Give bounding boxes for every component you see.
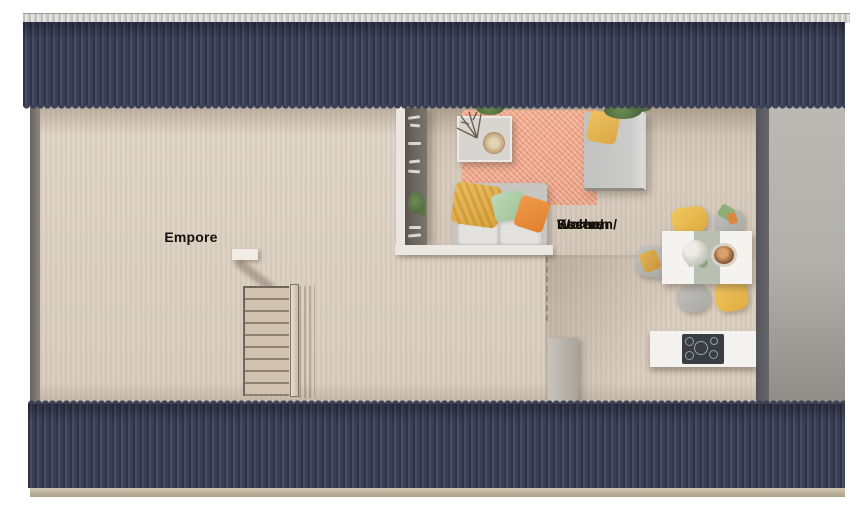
burner-icon bbox=[685, 351, 694, 360]
partition-wall bbox=[396, 105, 405, 246]
book-icon bbox=[408, 115, 420, 120]
left-gable-wall bbox=[30, 105, 40, 404]
book-icon bbox=[408, 170, 420, 174]
staircase bbox=[243, 286, 289, 396]
burner-icon bbox=[710, 337, 718, 345]
book-icon bbox=[409, 226, 421, 229]
dining-table bbox=[662, 231, 752, 284]
book-icon bbox=[410, 124, 420, 128]
burner-icon bbox=[685, 337, 694, 346]
burner-icon bbox=[694, 341, 708, 355]
stair-wall-stub bbox=[232, 249, 258, 260]
right-interior-wall bbox=[756, 105, 769, 404]
kitchen-island bbox=[650, 331, 757, 367]
stair-railing-shadow bbox=[299, 286, 315, 398]
stair-railing bbox=[290, 284, 299, 397]
bookshelf bbox=[405, 108, 427, 245]
daybed bbox=[584, 112, 646, 191]
room-label-empore: Empore bbox=[141, 230, 241, 246]
attic-floor-plan: Empore Wohnen/ Essen/ Kochen bbox=[0, 0, 866, 517]
sofa bbox=[454, 183, 547, 246]
burner-icon bbox=[709, 350, 718, 359]
book-icon bbox=[408, 142, 421, 145]
roof-slope-top bbox=[23, 22, 845, 105]
flower-bouquet-icon bbox=[682, 240, 708, 266]
book-icon bbox=[408, 233, 421, 237]
dining-chair bbox=[677, 283, 710, 312]
roof-slope-bottom bbox=[28, 404, 845, 488]
coffee-table bbox=[457, 116, 512, 162]
gallery-knee-wall bbox=[395, 245, 553, 255]
bowl-icon bbox=[711, 243, 737, 267]
right-gable-surface bbox=[769, 105, 845, 404]
kitchen-wall-stub bbox=[548, 338, 578, 404]
roof-eave bbox=[30, 488, 845, 497]
opening-dashed-line bbox=[546, 257, 548, 321]
label-line-kochen: Kochen bbox=[557, 217, 610, 233]
book-icon bbox=[409, 159, 420, 163]
dining-chair bbox=[671, 205, 708, 234]
cooktop bbox=[682, 334, 724, 364]
plant-icon bbox=[408, 192, 425, 214]
